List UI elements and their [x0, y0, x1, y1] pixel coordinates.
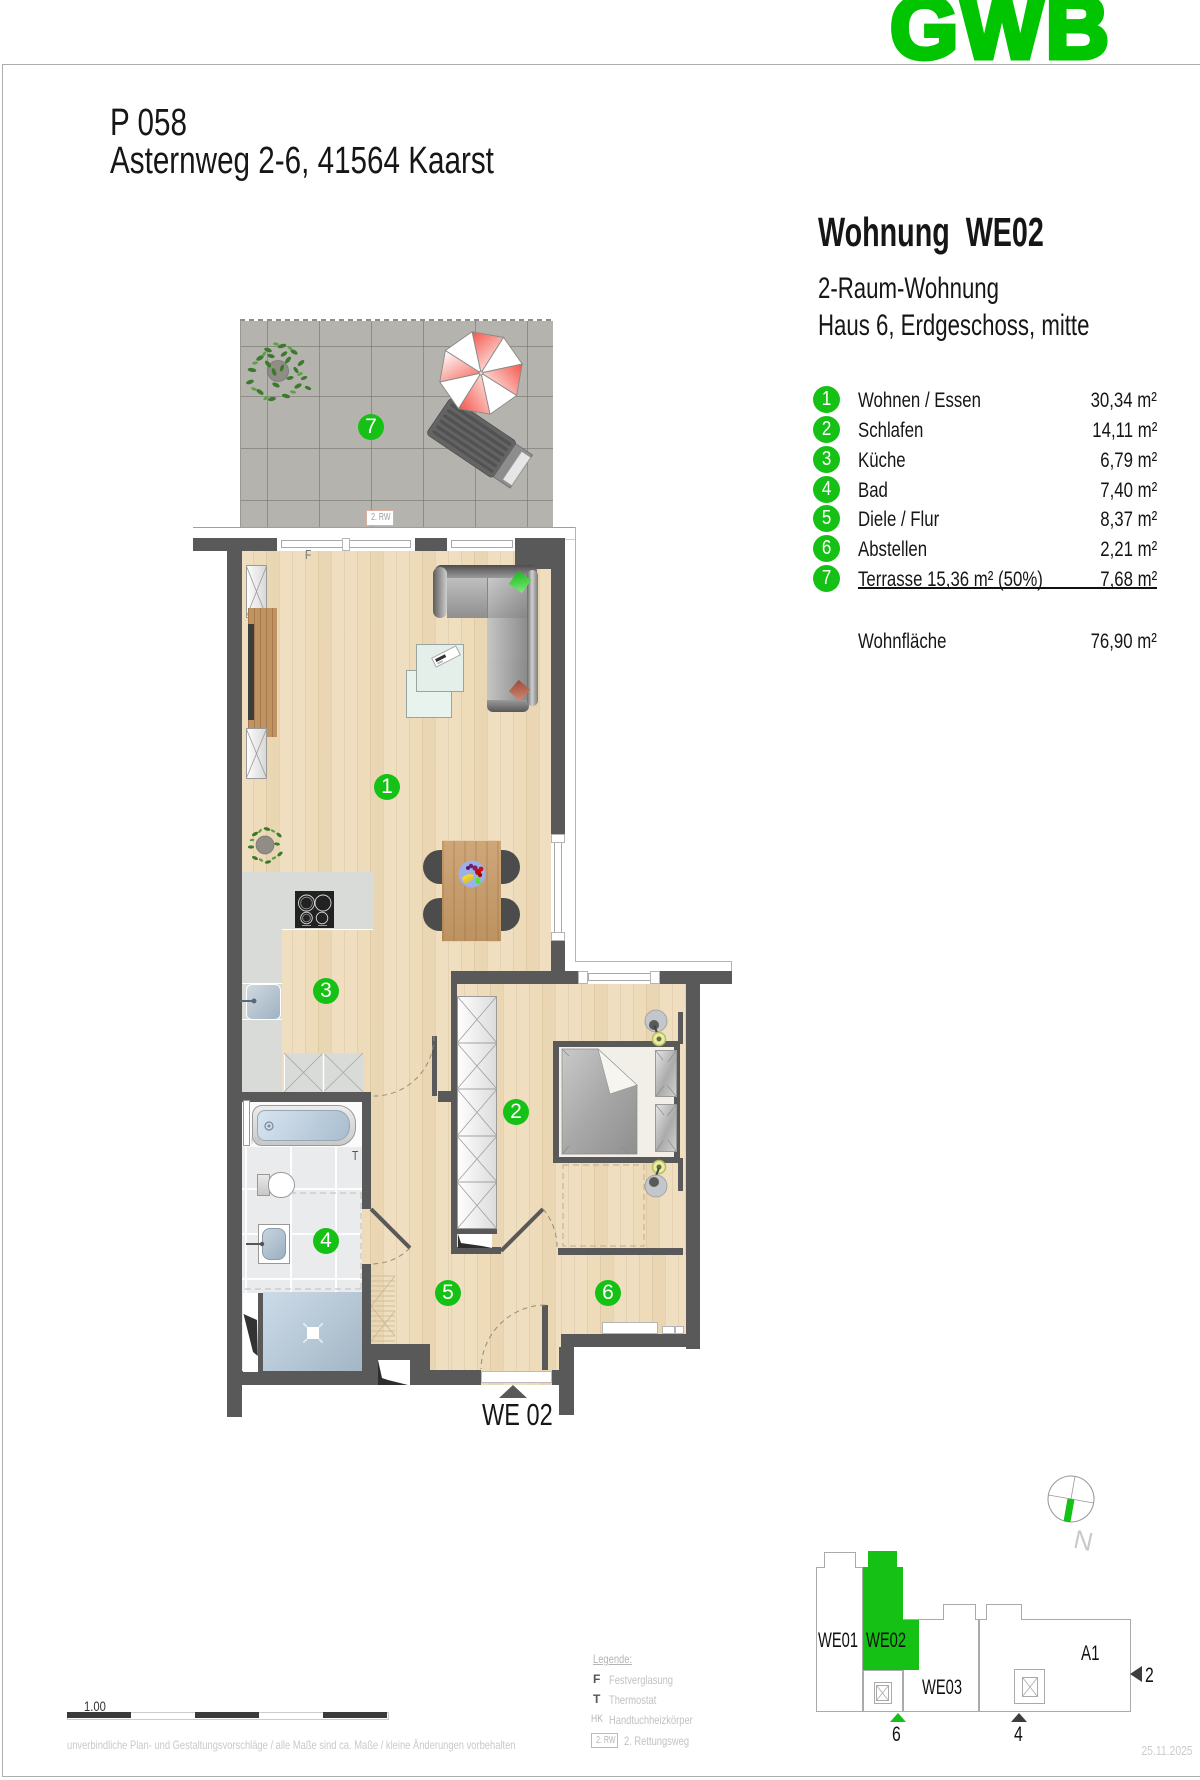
svg-text:N: N — [1071, 1524, 1096, 1557]
